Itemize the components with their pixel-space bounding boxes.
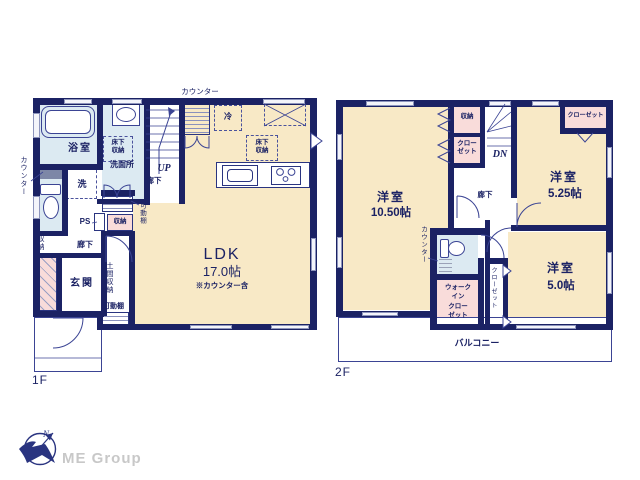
ps-label: PS — [76, 217, 94, 227]
window — [516, 325, 576, 329]
underfloor-storage-ldk-label: 床下 収納 — [246, 139, 278, 155]
bedroom1-size-label: 10.50帖 — [359, 207, 423, 221]
walk-in-closet-label: ウォーク イン クロー ゼット — [439, 283, 477, 321]
wall — [144, 98, 150, 205]
toilet-storage-label: 収納 — [37, 235, 44, 251]
hall-stairs-label: 廊下 — [139, 176, 169, 185]
wall — [480, 100, 485, 168]
compass-icon: N — [19, 429, 56, 465]
window — [190, 325, 232, 329]
counter-top-label: カウンター — [168, 87, 232, 96]
window — [366, 101, 414, 106]
wall — [179, 158, 185, 204]
kitchen-counter-space — [264, 104, 306, 126]
balcony-label: バルコニー — [448, 338, 506, 349]
wall — [101, 190, 135, 196]
company-logo-text: ME Group — [62, 450, 142, 467]
bedroom3-size-label: 5.0帖 — [539, 280, 583, 294]
wall — [448, 133, 480, 137]
window — [263, 99, 305, 104]
storage-2f-label: 収納 — [452, 113, 482, 121]
window — [337, 134, 342, 160]
wall — [129, 232, 135, 330]
counter-2f-label: カウンター — [419, 226, 426, 264]
underfloor-storage-washroom-label: 床下 収納 — [103, 139, 133, 155]
stairs-2f-lines — [487, 104, 511, 146]
floor1-label: 1F — [32, 373, 62, 387]
toilet-counter-1f — [37, 170, 63, 179]
counter-left-label: カウンター — [20, 156, 27, 196]
ps-box — [94, 213, 105, 231]
room-bedroom3 — [508, 232, 606, 323]
washer-label: 洗 — [74, 179, 90, 190]
wall — [62, 170, 68, 236]
wall — [511, 225, 613, 231]
ldk-name-label: LDK — [190, 245, 254, 264]
floor2-label: 2F — [335, 365, 365, 379]
window — [271, 325, 309, 329]
closet-side-label: クローゼット — [490, 267, 496, 309]
window — [112, 99, 142, 104]
wall — [606, 100, 613, 330]
closet-top-right-label: クローゼット — [564, 113, 607, 120]
washbasin-bowl — [116, 107, 136, 122]
entrance-label: 玄関 — [60, 278, 104, 290]
floor-plan-canvas: N カウンター 浴室 床下 収納 洗面所 洗 カウンター 収納 廊下 廊下 PS… — [0, 0, 640, 480]
up-label: UP — [150, 163, 178, 175]
wall — [448, 163, 480, 168]
fridge-label: 冷 — [214, 112, 242, 122]
toilet-tank-1f — [40, 184, 61, 195]
doma-storage-label: 土間収納 — [106, 262, 113, 294]
wall — [33, 311, 104, 317]
window — [607, 252, 612, 294]
toilet-bowl-2f — [448, 241, 465, 256]
hall-storage-label: 収納 — [107, 218, 133, 226]
hall-lower-label: 廊下 — [70, 240, 100, 250]
ldk-note-label: ※カウンター含 — [186, 281, 258, 290]
window — [607, 147, 612, 178]
bedroom1-name-label: 洋室 — [369, 190, 413, 204]
bath-label: 浴室 — [58, 143, 102, 155]
closet-mid-label: クロー ゼット — [452, 140, 482, 156]
wall — [430, 228, 487, 235]
hall-2f-label: 廊下 — [470, 190, 500, 199]
wall — [103, 231, 135, 236]
bedroom3-name-label: 洋室 — [543, 261, 579, 275]
door-arc — [457, 196, 479, 218]
counter-hatch — [182, 104, 210, 135]
ldk-size-label: 17.0帖 — [190, 264, 254, 280]
stairs-arrowhead — [168, 107, 175, 116]
wall — [430, 228, 437, 330]
wall — [179, 100, 185, 158]
wall — [503, 258, 508, 330]
wall — [478, 258, 484, 330]
kitchen-stove — [271, 166, 301, 185]
wall — [437, 274, 483, 280]
window — [489, 101, 511, 106]
dn-label: DN — [488, 149, 512, 161]
bathtub-inner — [45, 110, 91, 134]
window — [33, 196, 40, 219]
wall — [33, 253, 106, 258]
window — [337, 237, 342, 268]
compass-north-label: N — [42, 429, 50, 439]
movable-shelf-label: 可動棚 — [138, 202, 145, 225]
bedroom2-name-label: 洋室 — [546, 170, 582, 184]
window — [311, 238, 316, 271]
toilet-bowl-1f — [43, 196, 59, 219]
window — [362, 312, 398, 316]
toilet-counter-2f — [439, 256, 452, 273]
window — [33, 113, 40, 138]
wall — [336, 100, 343, 317]
wall — [560, 128, 608, 134]
doma-shelf-label: 可動棚 — [98, 303, 129, 311]
washroom-label: 洗面所 — [98, 160, 146, 170]
kitchen-sink-basin — [227, 169, 253, 182]
bedroom2-size-label: 5.25帖 — [539, 188, 591, 202]
stairs-1f-treads — [146, 110, 179, 158]
window — [64, 99, 92, 104]
entrance-porch — [34, 317, 102, 372]
wall — [310, 98, 317, 330]
window — [532, 101, 559, 106]
